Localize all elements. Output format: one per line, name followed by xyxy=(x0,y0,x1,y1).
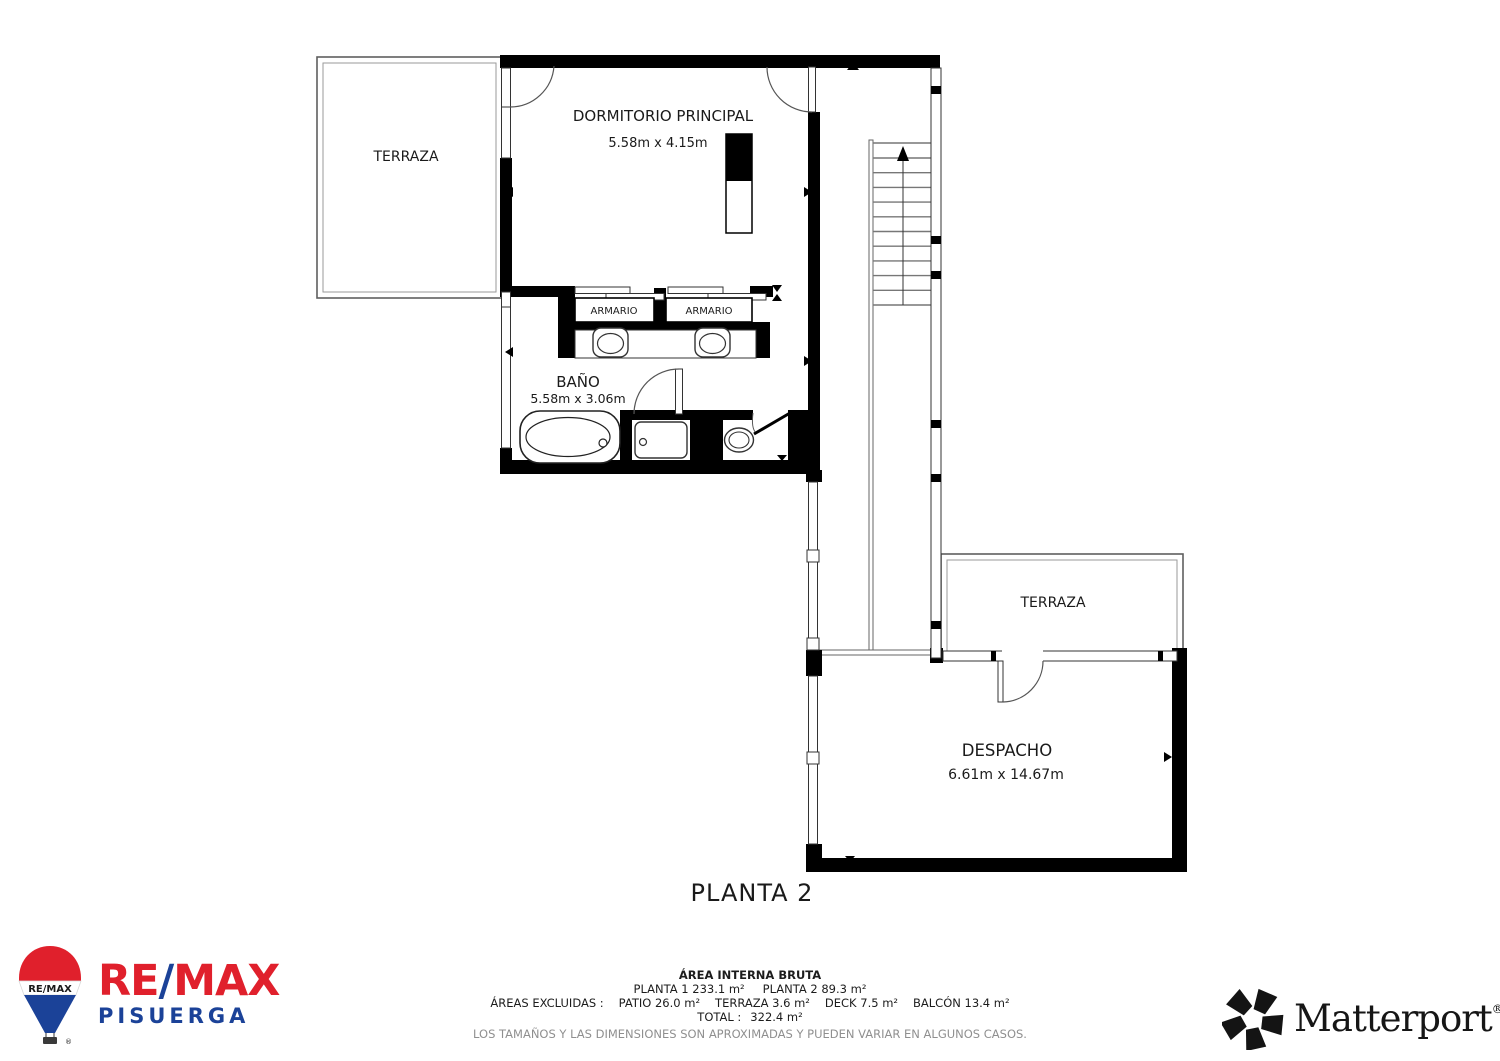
sink-left-icon xyxy=(593,328,628,357)
area-summary-title: ÁREA INTERNA BRUTA xyxy=(473,968,1027,982)
excluidas-terraza: TERRAZA 3.6 m² xyxy=(715,996,810,1010)
floorplan-page: { "plan": { "title": "PLANTA 2", "rooms"… xyxy=(0,0,1500,1061)
staircase xyxy=(873,143,931,305)
excluidas-patio: PATIO 26.0 m² xyxy=(619,996,700,1010)
armario-left-label: ARMARIO xyxy=(590,306,637,317)
area-total-row: TOTAL : 322.4 m² xyxy=(473,1010,1027,1024)
sink-right-icon xyxy=(695,328,730,357)
remax-balloon-icon: RE/MAX ® xyxy=(12,944,88,1045)
area-planta1: PLANTA 1 233.1 m² xyxy=(634,982,745,996)
bano-label: BAÑO xyxy=(556,372,600,391)
despacho-doorway xyxy=(1002,649,1043,663)
area-excluidas-row: ÁREAS EXCLUIDAS : PATIO 26.0 m² TERRAZA … xyxy=(473,996,1027,1010)
remax-word-re: RE xyxy=(98,956,158,1006)
matterport-pinwheel-icon xyxy=(1222,986,1284,1050)
shower-icon xyxy=(632,420,690,460)
stairs-up-arrow-icon xyxy=(897,146,909,161)
terraza-right-label: TERRAZA xyxy=(1019,595,1085,611)
excluidas-label: ÁREAS EXCLUIDAS : xyxy=(490,996,603,1010)
matterport-name: Matterport® xyxy=(1294,1000,1500,1037)
floor-title: PLANTA 2 xyxy=(691,879,814,907)
remax-word-max: MAX xyxy=(173,956,279,1006)
toilet-icon xyxy=(725,428,754,452)
total-value: 322.4 m² xyxy=(750,1010,802,1024)
excluidas-balcon: BALCÓN 13.4 m² xyxy=(913,996,1010,1010)
area-summary: ÁREA INTERNA BRUTA PLANTA 1 233.1 m² PLA… xyxy=(473,968,1027,1041)
remax-word-slash: / xyxy=(158,956,173,1006)
terraza-top-outline xyxy=(317,57,502,298)
floorplan-drawing: TERRAZA DORMITORIO PRINCIPAL 5.58m x 4.1… xyxy=(0,0,1500,1061)
remax-subtitle: PISUERGA xyxy=(98,1004,279,1028)
remax-reg-mark: ® xyxy=(65,1038,72,1045)
wardrobe-column xyxy=(726,134,752,233)
bano-dims: 5.58m x 3.06m xyxy=(530,391,625,406)
dormitorio-dims: 5.58m x 4.15m xyxy=(608,136,707,151)
total-label: TOTAL : xyxy=(697,1010,741,1024)
excluidas-deck: DECK 7.5 m² xyxy=(825,996,898,1010)
dormitorio-label: DORMITORIO PRINCIPAL xyxy=(573,107,754,125)
bathtub-icon xyxy=(520,411,620,463)
armario-right-label: ARMARIO xyxy=(685,306,732,317)
remax-wordmark: RE/MAX PISUERGA xyxy=(98,961,279,1028)
despacho-dims: 6.61m x 14.67m xyxy=(948,767,1064,783)
terraza-top-label: TERRAZA xyxy=(372,149,438,165)
remax-logo: RE/MAX ® RE/MAX PISUERGA xyxy=(12,944,279,1045)
remax-balloon-text: RE/MAX xyxy=(28,984,72,995)
area-planta2: PLANTA 2 89.3 m² xyxy=(763,982,867,996)
disclaimer-text: LOS TAMAÑOS Y LAS DIMENSIONES SON APROXI… xyxy=(473,1027,1027,1041)
window-mullions xyxy=(931,86,1163,661)
matterport-reg-mark: ® xyxy=(1492,1002,1500,1016)
area-plantas-row: PLANTA 1 233.1 m² PLANTA 2 89.3 m² xyxy=(473,982,1027,996)
despacho-label: DESPACHO xyxy=(962,741,1052,760)
matterport-logo: Matterport® xyxy=(1222,986,1500,1050)
